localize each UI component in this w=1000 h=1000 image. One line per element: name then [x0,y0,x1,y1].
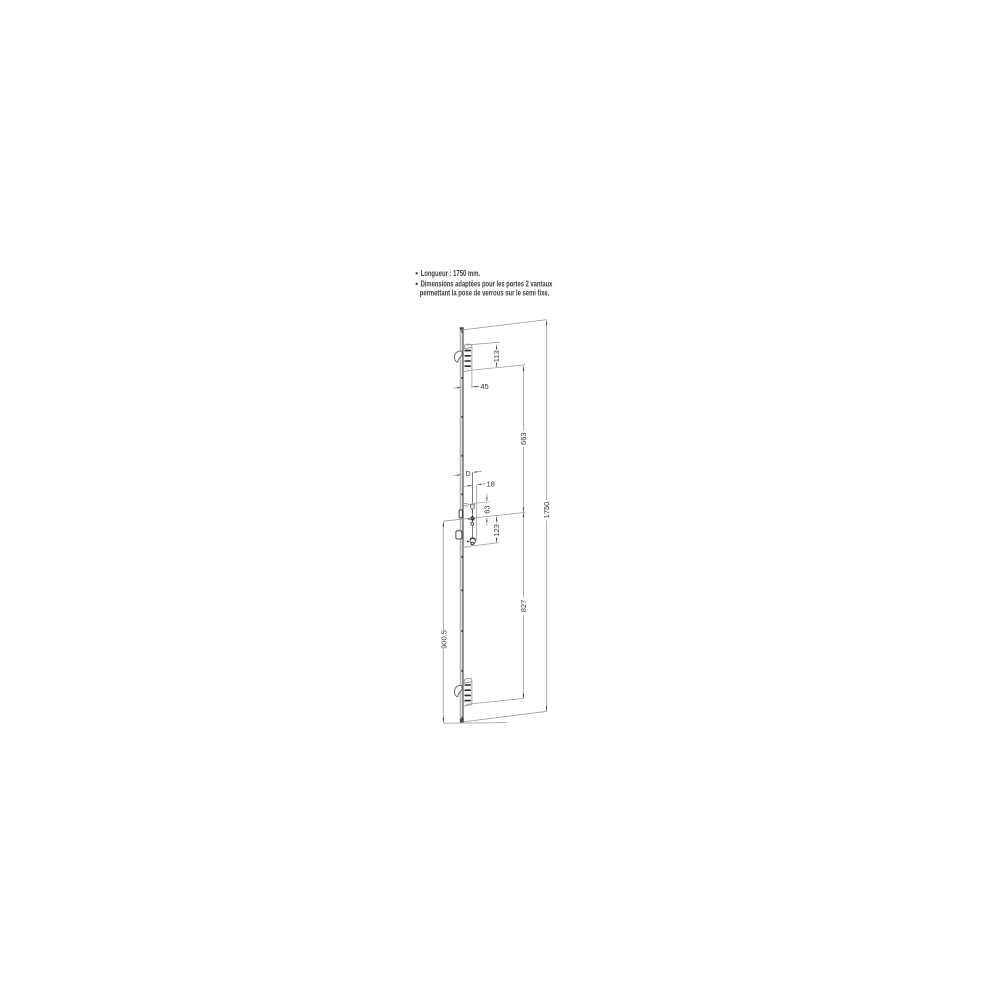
svg-text:900.5: 900.5 [439,630,448,649]
svg-text:Longueur : 1750 mm.: Longueur : 1750 mm. [421,268,481,278]
svg-text:827: 827 [519,600,528,613]
svg-text:1750: 1750 [542,502,551,519]
svg-text:permettant la pose de verrous: permettant la pose de verrous sur le sem… [420,287,550,297]
svg-text:18: 18 [487,479,495,488]
svg-text:63: 63 [482,505,491,513]
svg-text:113: 113 [492,350,501,362]
svg-text:123: 123 [492,524,501,537]
svg-text:•: • [415,268,418,278]
svg-text:D: D [466,469,471,478]
svg-text:•: • [415,278,418,288]
svg-text:663: 663 [519,432,528,445]
svg-text:45: 45 [480,382,488,391]
